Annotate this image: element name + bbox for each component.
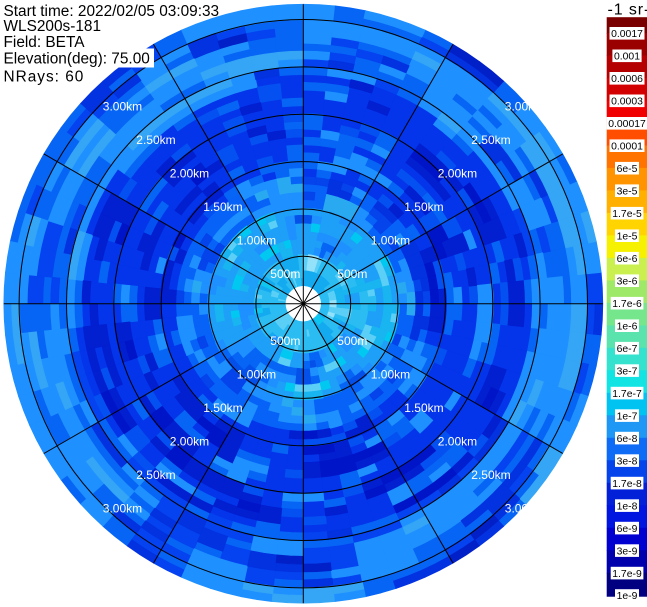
- svg-text:1.50km: 1.50km: [203, 401, 242, 415]
- svg-text:2.50km: 2.50km: [471, 133, 510, 147]
- svg-text:1.50km: 1.50km: [404, 200, 443, 214]
- svg-text:3e-9: 3e-9: [617, 546, 638, 557]
- svg-text:1.7e-5: 1.7e-5: [612, 209, 642, 220]
- svg-text:1.7e-8: 1.7e-8: [612, 479, 642, 490]
- svg-text:1.00km: 1.00km: [237, 368, 276, 382]
- svg-text:6e-6: 6e-6: [617, 254, 638, 265]
- svg-text:-1 sr-1: -1 sr-1: [608, 2, 647, 19]
- svg-text:1.7e-6: 1.7e-6: [612, 299, 642, 310]
- svg-text:Elevation(deg): 75.00: Elevation(deg): 75.00: [4, 50, 150, 67]
- svg-text:0.0001: 0.0001: [611, 141, 643, 152]
- svg-text:1.50km: 1.50km: [404, 401, 443, 415]
- svg-text:WLS200s-181: WLS200s-181: [4, 18, 102, 35]
- svg-text:1.00km: 1.00km: [371, 234, 410, 248]
- svg-text:3.00km: 3.00km: [505, 100, 544, 114]
- svg-text:500m: 500m: [337, 334, 367, 348]
- svg-text:2.50km: 2.50km: [471, 468, 510, 482]
- svg-text:0.0003: 0.0003: [611, 97, 643, 108]
- svg-text:6e-5: 6e-5: [617, 164, 638, 175]
- svg-text:0.0017: 0.0017: [611, 29, 643, 40]
- svg-text:2.00km: 2.00km: [438, 167, 477, 181]
- svg-text:1e-5: 1e-5: [617, 231, 638, 242]
- svg-text:1.7e-7: 1.7e-7: [612, 389, 642, 400]
- svg-text:3.00km: 3.00km: [103, 502, 142, 516]
- svg-text:0.0006: 0.0006: [611, 74, 643, 85]
- svg-text:3.00km: 3.00km: [103, 100, 142, 114]
- svg-text:2.50km: 2.50km: [136, 133, 175, 147]
- svg-text:0.00017: 0.00017: [608, 119, 646, 130]
- svg-text:500m: 500m: [270, 267, 300, 281]
- svg-text:2.00km: 2.00km: [170, 435, 209, 449]
- svg-text:6e-8: 6e-8: [617, 434, 638, 445]
- svg-text:1.7e-9: 1.7e-9: [612, 569, 642, 580]
- svg-text:Field: BETA: Field: BETA: [4, 34, 86, 51]
- svg-text:3e-5: 3e-5: [617, 186, 638, 197]
- svg-text:0.001: 0.001: [614, 52, 640, 63]
- svg-text:3e-7: 3e-7: [617, 366, 638, 377]
- svg-text:3e-6: 3e-6: [617, 276, 638, 287]
- svg-text:2.00km: 2.00km: [170, 167, 209, 181]
- svg-text:1e-8: 1e-8: [617, 501, 638, 512]
- svg-text:1.00km: 1.00km: [237, 234, 276, 248]
- svg-text:6e-7: 6e-7: [617, 344, 638, 355]
- svg-text:6e-9: 6e-9: [617, 524, 638, 535]
- svg-text:3e-8: 3e-8: [617, 456, 638, 467]
- svg-text:1.50km: 1.50km: [203, 200, 242, 214]
- svg-text:1e-7: 1e-7: [617, 411, 638, 422]
- svg-text:2.00km: 2.00km: [438, 435, 477, 449]
- svg-text:2.50km: 2.50km: [136, 468, 175, 482]
- svg-text:NRays: 60: NRays: 60: [4, 69, 85, 86]
- svg-text:1e-6: 1e-6: [617, 321, 638, 332]
- svg-text:3.00km: 3.00km: [505, 502, 544, 516]
- svg-text:1e-9: 1e-9: [617, 591, 638, 602]
- svg-text:500m: 500m: [337, 267, 367, 281]
- svg-text:500m: 500m: [270, 334, 300, 348]
- svg-text:1.00km: 1.00km: [371, 368, 410, 382]
